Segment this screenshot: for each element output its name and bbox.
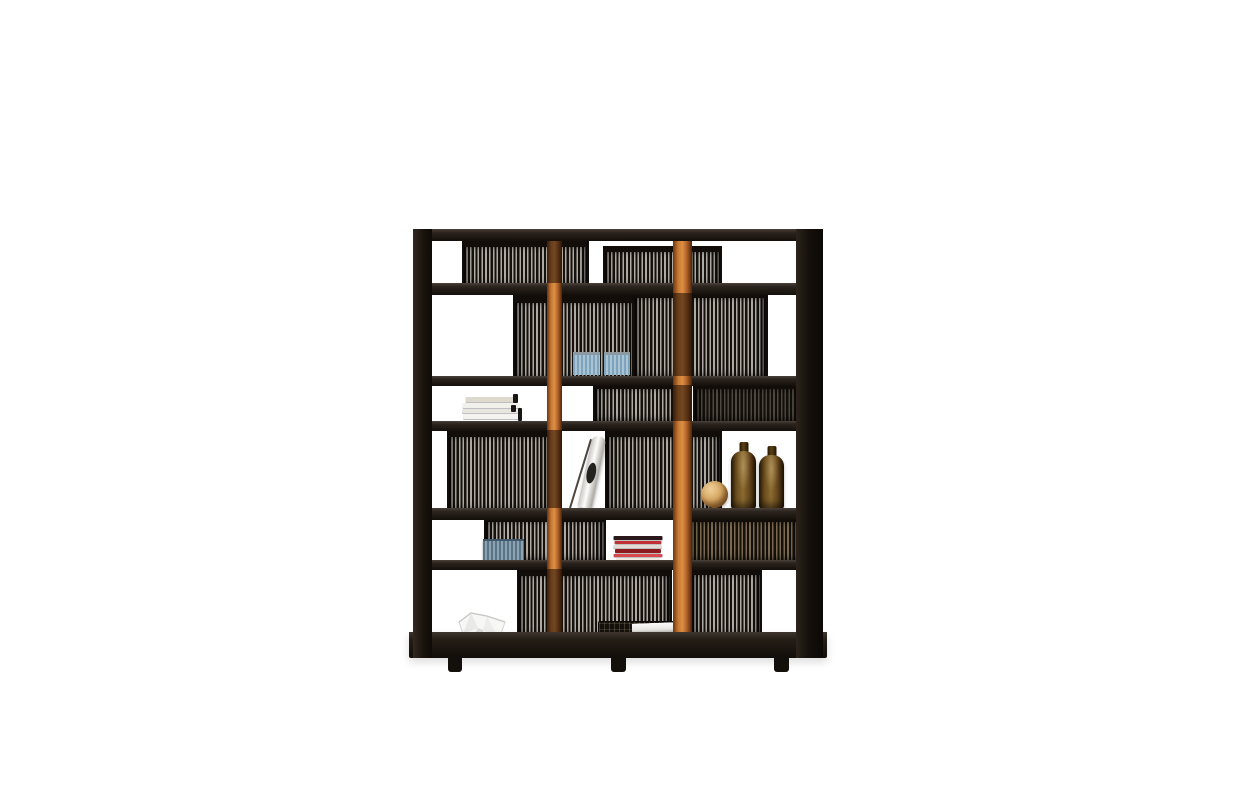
orange-post-right (673, 233, 692, 640)
white-book-stack (462, 392, 520, 420)
shelf-board-3 (413, 376, 823, 386)
cd-row-5-right (688, 517, 801, 565)
blue-cd-cases-a (573, 352, 600, 375)
red-book-stack-spine (614, 549, 660, 553)
foot-left (448, 656, 462, 672)
foot-center (611, 656, 626, 672)
orange-post-left-shade (547, 430, 562, 508)
red-book-stack-spine (614, 541, 661, 544)
leaning-white-object (566, 434, 596, 509)
wooden-sphere (701, 481, 728, 508)
shelf-board-6 (413, 560, 823, 570)
bookcase-product-photo (0, 0, 1235, 800)
red-book-stack-spine (613, 536, 662, 540)
book-end-mark (511, 405, 516, 412)
cd-row-2-right (632, 292, 768, 385)
bottle-body (731, 451, 756, 509)
book-end-mark (513, 394, 518, 403)
left-side-panel (413, 229, 432, 658)
orange-post-right-shade (673, 385, 692, 421)
shelf-board-2 (413, 283, 823, 295)
amber-bottle-2 (759, 446, 784, 509)
red-book-stack-spine (613, 554, 662, 557)
orange-post-left (547, 233, 562, 640)
blue-cd-cases-b (604, 352, 630, 375)
cd-row-3-center (593, 384, 682, 426)
shelf-board-5 (413, 508, 823, 520)
red-book-stack-spine (613, 545, 663, 548)
shelf-board-4 (413, 421, 823, 431)
bottom-board (409, 632, 827, 658)
red-book-stack (613, 536, 662, 562)
foot-right (774, 656, 789, 672)
cd-row-4-left (447, 430, 552, 515)
amber-bottle-1 (731, 442, 756, 509)
right-side-panel (796, 229, 823, 658)
bottle-body (759, 455, 784, 509)
orange-post-right-shade (673, 293, 692, 376)
top-board (413, 229, 823, 241)
white-book-stack-spine (463, 414, 519, 419)
cd-row-6-center (690, 569, 762, 641)
bottle-label (585, 462, 598, 484)
orange-post-left-shade (547, 569, 562, 640)
small-black-object (518, 408, 522, 421)
white-book-stack-spine (465, 397, 516, 402)
cd-row-3-right (693, 384, 801, 426)
